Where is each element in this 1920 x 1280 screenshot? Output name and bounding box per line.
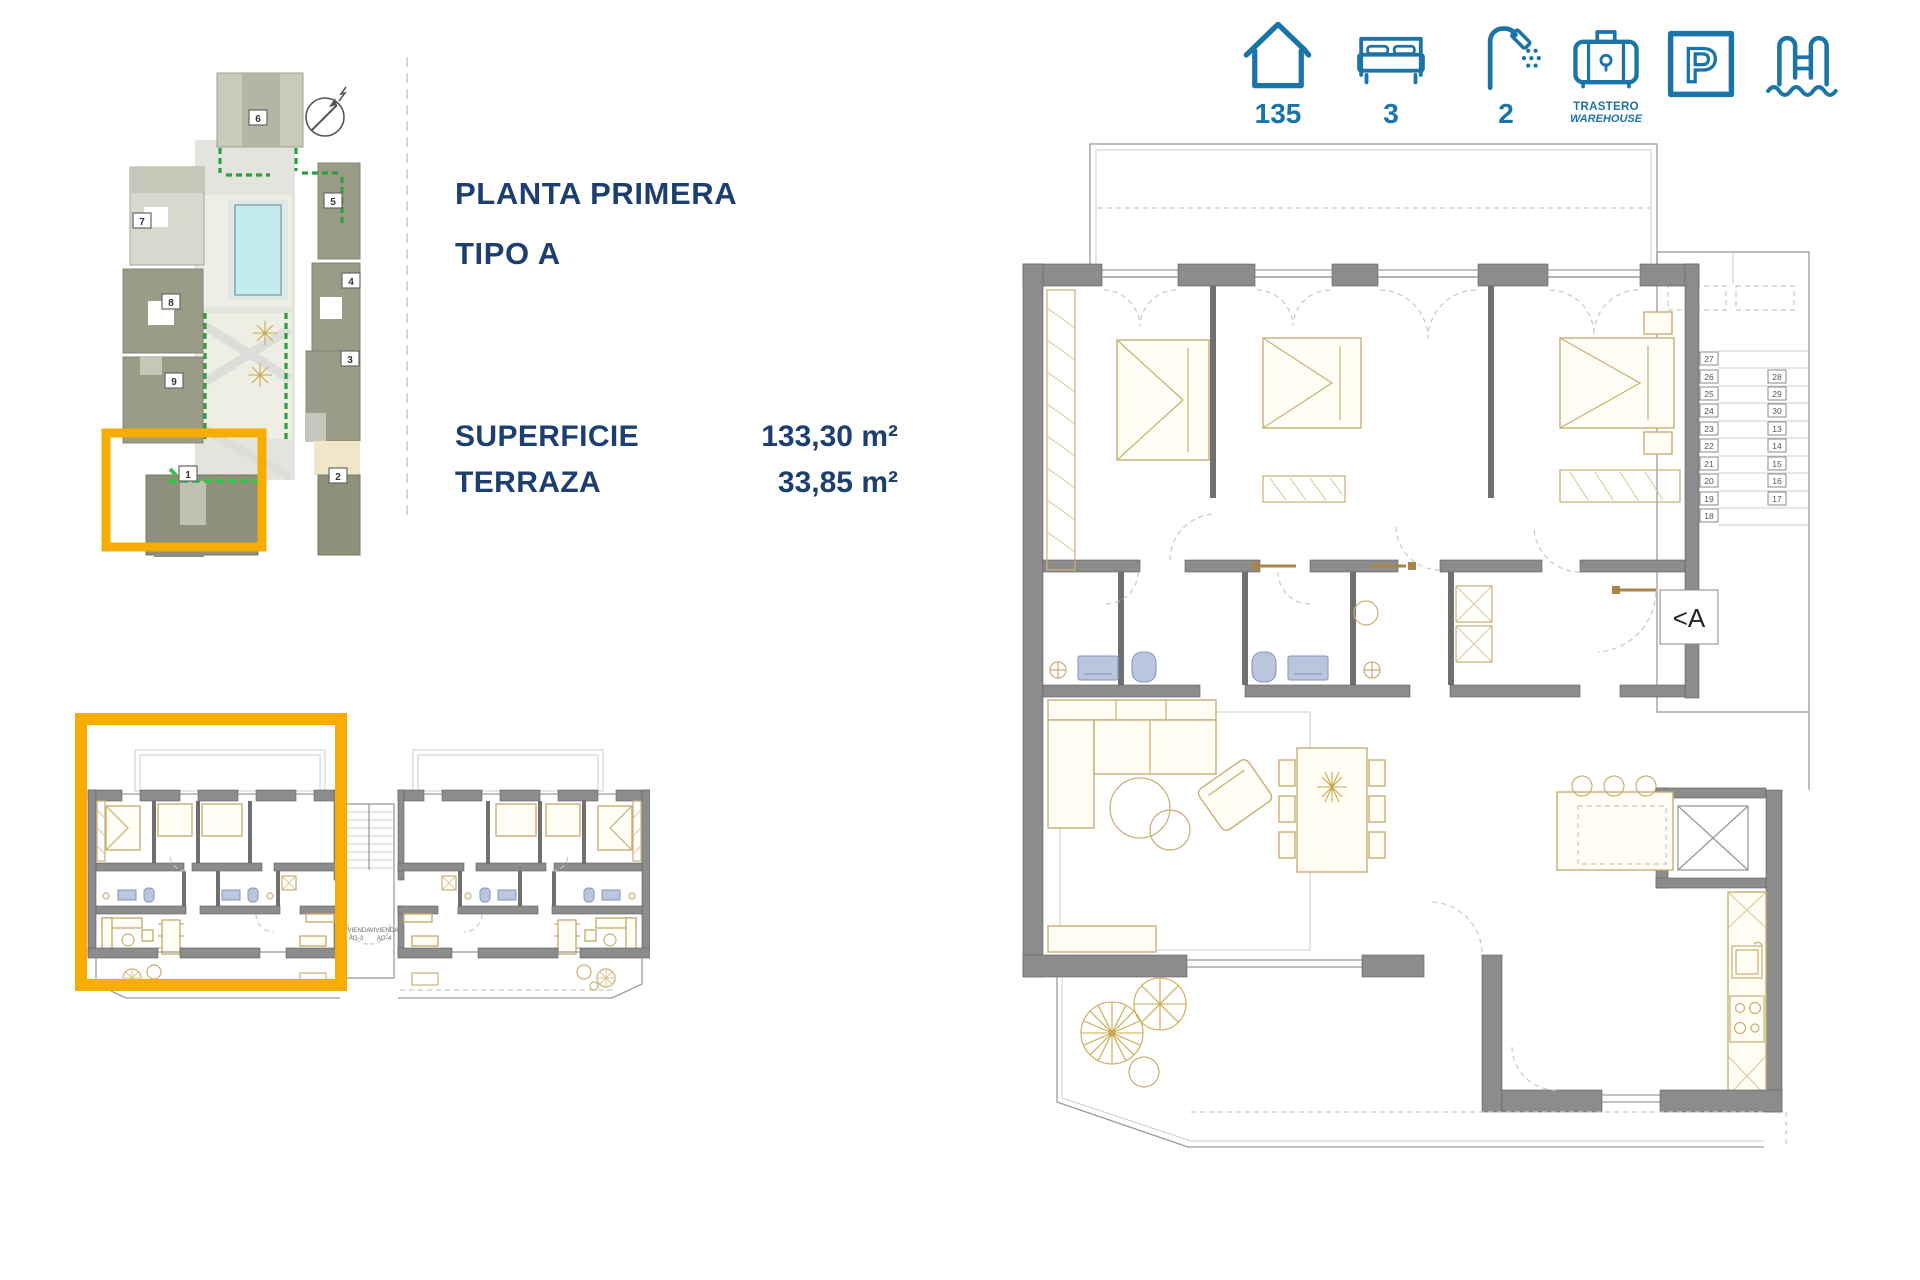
kitchen <box>1557 776 1766 1100</box>
storage-number: 14 <box>1772 441 1782 451</box>
unit-label-right-id: AG-4 <box>377 935 392 942</box>
shower-icon <box>1469 18 1543 92</box>
warehouse-icon <box>1567 20 1645 92</box>
bottom-terrace <box>1057 977 1786 1147</box>
unit-highlight-box <box>75 713 347 991</box>
building-number: 7 <box>139 217 145 228</box>
amenity-parking: P <box>1660 26 1742 102</box>
building-number: 8 <box>168 298 174 309</box>
plan-title: PLANTA PRIMERA <box>455 176 737 212</box>
building-number: 5 <box>330 197 336 208</box>
bathroom-fixtures <box>1050 586 1492 682</box>
storage-number: 30 <box>1772 406 1782 416</box>
brochure-page: { "header": { "amenities": [ { "icon": "… <box>0 0 1920 1280</box>
parking-icon: P <box>1663 26 1739 102</box>
entrance-label: <A <box>1673 603 1706 633</box>
storage-number: 22 <box>1704 441 1714 451</box>
house-icon <box>1241 18 1315 92</box>
entrance-marker: <A <box>1660 590 1718 644</box>
storage-number: 24 <box>1704 406 1714 416</box>
living-room <box>1048 700 1385 952</box>
amenity-pool <box>1760 28 1846 100</box>
pool-icon <box>1763 28 1843 100</box>
building-number: 4 <box>348 277 354 288</box>
storage-number: 23 <box>1704 424 1714 434</box>
site-plan: 1 2 3 4 5 6 7 8 9 <box>90 45 420 590</box>
storage-number: 28 <box>1772 372 1782 382</box>
parking-letter: P <box>1685 39 1717 92</box>
storage-label-en: WAREHOUSE <box>1570 113 1642 125</box>
door-arcs <box>1106 514 1656 652</box>
storage-number: 16 <box>1772 476 1782 486</box>
storage-number: 13 <box>1772 424 1782 434</box>
main-floor-plan: 27 26 25 24 23 22 21 20 19 18 28 29 30 1… <box>1020 140 1815 1155</box>
terraza-label: TERRAZA <box>455 466 601 500</box>
building-number: 6 <box>255 114 261 125</box>
compass-icon <box>306 87 346 136</box>
amenity-bathrooms: 2 <box>1466 18 1546 130</box>
amenity-area: 135 <box>1238 18 1318 130</box>
plant-symbols <box>1081 978 1186 1064</box>
building-number: 9 <box>171 377 177 388</box>
storage-number: 19 <box>1704 494 1714 504</box>
terraza-value: 33,85 m² <box>640 466 898 500</box>
superficie-value: 133,30 m² <box>640 420 898 454</box>
bed-icon <box>1352 26 1430 92</box>
amenity-storage: TRASTERO WAREHOUSE <box>1558 20 1654 125</box>
unit-label-left-id: AG-3 <box>349 935 364 942</box>
stair-core <box>344 804 394 978</box>
storage-number: 25 <box>1704 389 1714 399</box>
area-value: 135 <box>1255 98 1302 130</box>
storage-number: 20 <box>1704 476 1714 486</box>
plan-subtitle: TIPO A <box>455 236 561 272</box>
storage-lockers: 27 26 25 24 23 22 21 20 19 18 28 29 30 1… <box>1700 351 1809 525</box>
storage-number: 15 <box>1772 459 1782 469</box>
storage-number: 29 <box>1772 389 1782 399</box>
storage-number: 18 <box>1704 511 1714 521</box>
storage-number: 17 <box>1772 494 1782 504</box>
storage-label-es: TRASTERO <box>1573 101 1639 113</box>
amenity-bedrooms: 3 <box>1350 26 1432 130</box>
building-number: 1 <box>185 470 191 481</box>
bedrooms-value: 3 <box>1383 98 1399 130</box>
superficie-label: SUPERFICIE <box>455 420 639 454</box>
building-number: 2 <box>335 472 341 483</box>
building-number: 3 <box>347 355 353 366</box>
storage-number: 21 <box>1704 459 1714 469</box>
unit-label-right-name: VIVIENDA <box>370 927 400 934</box>
storage-number: 27 <box>1704 354 1714 364</box>
bedroom-furniture <box>1047 290 1680 570</box>
storage-number: 26 <box>1704 372 1714 382</box>
bathrooms-value: 2 <box>1498 98 1514 130</box>
